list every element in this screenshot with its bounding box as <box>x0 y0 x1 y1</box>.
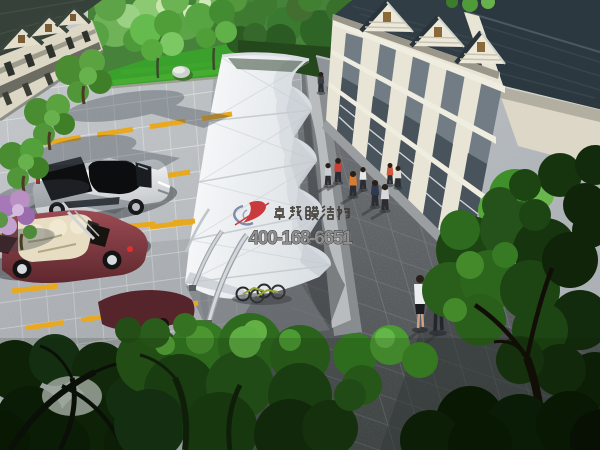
svg-text:400-168-6651: 400-168-6651 <box>249 228 353 249</box>
